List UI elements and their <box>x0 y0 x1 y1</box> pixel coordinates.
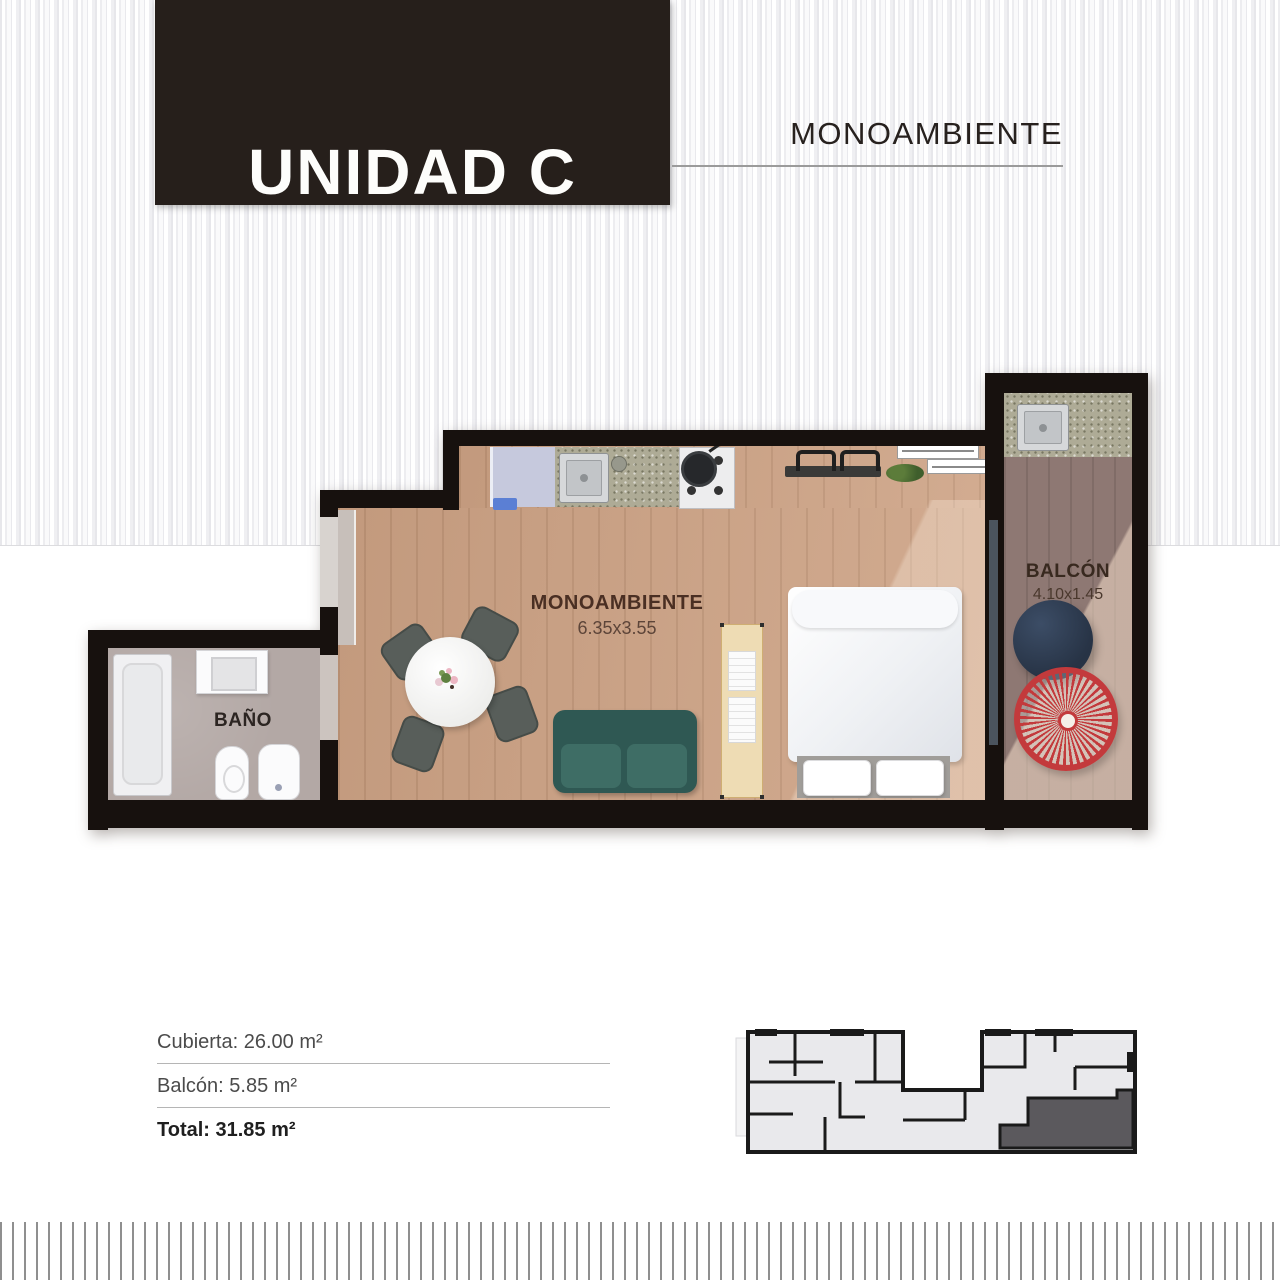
area-summary: Cubierta: 26.00 m² Balcón: 5.85 m² Total… <box>157 1031 610 1151</box>
bathroom-door-opening <box>320 655 338 740</box>
bed-blanket-roll <box>792 590 958 628</box>
building-key-plan <box>735 1022 1140 1162</box>
toilet <box>258 744 300 800</box>
wardrobe-shelf <box>721 624 763 798</box>
pillow <box>803 760 871 796</box>
divider <box>157 1063 610 1064</box>
wall <box>88 630 338 648</box>
divider <box>157 1107 610 1108</box>
covered-area: Cubierta: 26.00 m² <box>157 1031 610 1054</box>
plant <box>886 464 924 482</box>
kitchen-sink <box>559 453 609 503</box>
entry-closet <box>338 510 356 645</box>
fridge-mat <box>493 498 517 510</box>
bidet <box>215 746 249 800</box>
bottom-stripe-band <box>0 1222 1280 1280</box>
balcony-sink <box>1017 404 1069 451</box>
appliance-label <box>927 459 993 474</box>
wall <box>88 800 1148 828</box>
desk-chair <box>840 450 880 471</box>
counter-fixture <box>611 456 627 472</box>
balcony-area: Balcón: 5.85 m² <box>157 1075 610 1098</box>
dining-table <box>405 637 495 727</box>
balcony-label: BALCÓN 4.10x1.45 <box>1008 561 1128 604</box>
flower-centerpiece <box>441 673 451 683</box>
main-room-label: MONOAMBIENTE 6.35x3.55 <box>517 592 717 639</box>
balcony-glass-door <box>989 520 998 745</box>
brochure-page: UNIDAD C MONOAMBIENTE <box>0 0 1280 1280</box>
bathtub <box>113 654 172 796</box>
bathroom-label: BAÑO <box>193 710 293 732</box>
frying-pan <box>681 451 717 487</box>
pillow <box>876 760 944 796</box>
wall <box>320 490 459 508</box>
entry-door-opening <box>320 517 338 607</box>
wall <box>1132 373 1148 830</box>
total-area: Total: 31.85 m² <box>157 1119 610 1142</box>
wall <box>985 373 1148 393</box>
wall <box>443 430 1004 446</box>
bathroom-sink <box>196 650 268 694</box>
desk-chair <box>796 450 836 471</box>
sofa <box>553 710 697 793</box>
acapulco-chair <box>1014 667 1118 771</box>
